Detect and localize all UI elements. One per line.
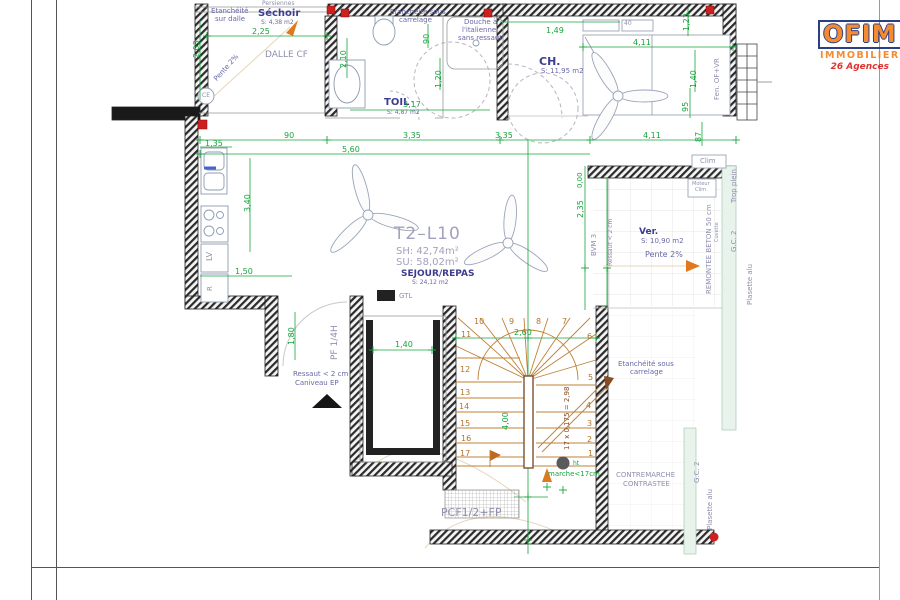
ofim-logo-brand: OFIM bbox=[818, 20, 900, 49]
ofim-logo-tagline: 26 Agences bbox=[818, 62, 900, 72]
pcf-grid-zone bbox=[445, 490, 519, 518]
floor-plan-drawing bbox=[0, 0, 900, 600]
window-symbol bbox=[737, 44, 772, 120]
level-dot-icon bbox=[557, 457, 570, 470]
duct-shaft bbox=[366, 290, 440, 455]
drawing-sheet: Etanchéitésur dallePersiennesSéchoirS: 4… bbox=[0, 0, 900, 600]
ofim-logo-subtitle: IMMOBILIER bbox=[818, 50, 900, 61]
bathroom-fixtures bbox=[329, 16, 479, 108]
ofim-logo: OFIM IMMOBILIER 26 Agences bbox=[818, 20, 900, 72]
slope-arrow-sechoir bbox=[286, 20, 298, 36]
tiled-floor-grid bbox=[593, 178, 721, 528]
stairs bbox=[456, 318, 614, 482]
entry-triangle-icon bbox=[312, 394, 342, 408]
